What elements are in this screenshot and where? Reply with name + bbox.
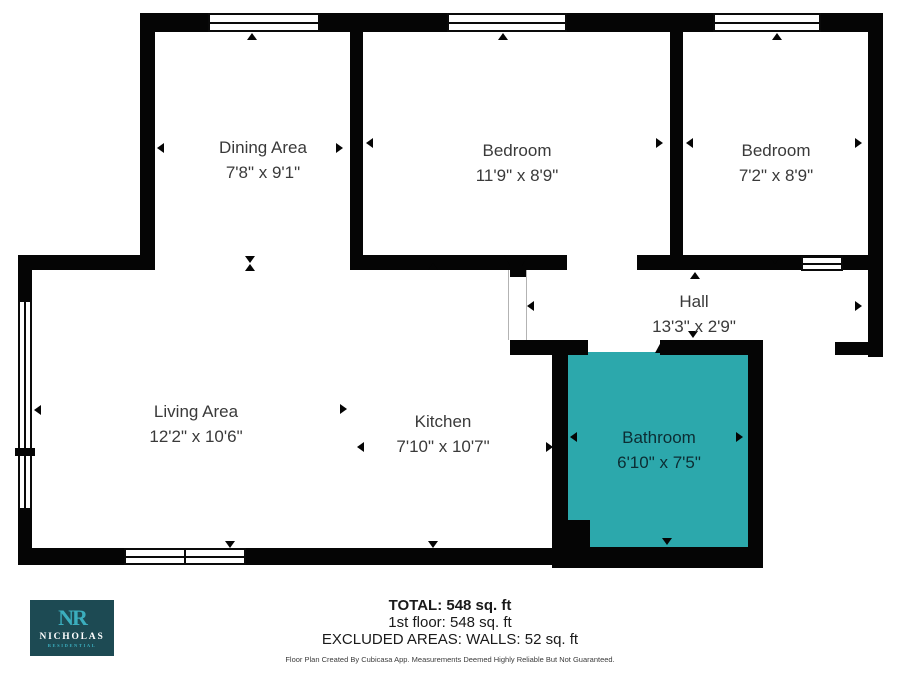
wall bbox=[18, 255, 155, 270]
room-dimensions: 6'10" x 7'5" bbox=[617, 450, 701, 475]
measure-arrow-icon bbox=[527, 301, 534, 311]
measure-arrow-icon bbox=[247, 33, 257, 40]
room-name: Kitchen bbox=[396, 409, 489, 434]
wall bbox=[835, 342, 883, 355]
measure-arrow-icon bbox=[428, 541, 438, 548]
room-dimensions: 7'2" x 8'9" bbox=[739, 163, 813, 188]
measure-arrow-icon bbox=[157, 143, 164, 153]
room-name: Bathroom bbox=[617, 425, 701, 450]
window bbox=[18, 454, 32, 510]
room-dimensions: 11'9" x 8'9" bbox=[476, 163, 559, 188]
measure-arrow-icon bbox=[366, 138, 373, 148]
wall bbox=[350, 255, 567, 270]
floor-plan-page: Dining Area 7'8" x 9'1" Bedroom 11'9" x … bbox=[0, 0, 900, 675]
logo-monogram: NR bbox=[58, 607, 86, 629]
room-label-kitchen: Kitchen 7'10" x 10'7" bbox=[396, 409, 489, 459]
wall bbox=[637, 255, 883, 270]
window bbox=[124, 548, 186, 565]
wall bbox=[140, 13, 155, 270]
room-name: Bedroom bbox=[476, 138, 559, 163]
door-marker-icon bbox=[655, 342, 679, 353]
room-name: Living Area bbox=[149, 399, 242, 424]
measure-arrow-icon bbox=[855, 138, 862, 148]
room-label-bedroom-2: Bedroom 7'2" x 8'9" bbox=[739, 138, 813, 188]
window bbox=[18, 300, 32, 450]
wall bbox=[748, 340, 763, 568]
floor-area-text: 1st floor: 548 sq. ft bbox=[285, 614, 614, 631]
measure-arrow-icon bbox=[855, 301, 862, 311]
measure-arrow-icon bbox=[245, 264, 255, 271]
passage-line bbox=[508, 270, 509, 340]
room-dimensions: 7'10" x 10'7" bbox=[396, 434, 489, 459]
room-label-hall: Hall 13'3" x 2'9" bbox=[652, 289, 736, 339]
room-label-living: Living Area 12'2" x 10'6" bbox=[149, 399, 242, 449]
logo-name: NICHOLAS bbox=[39, 631, 104, 643]
measure-arrow-icon bbox=[340, 404, 347, 414]
measure-arrow-icon bbox=[570, 432, 577, 442]
measure-arrow-icon bbox=[662, 538, 672, 545]
measure-arrow-icon bbox=[498, 33, 508, 40]
area-summary: TOTAL: 548 sq. ft 1st floor: 548 sq. ft … bbox=[285, 597, 614, 665]
excluded-areas-text: EXCLUDED AREAS: WALLS: 52 sq. ft bbox=[285, 631, 614, 648]
measure-arrow-icon bbox=[686, 138, 693, 148]
wall bbox=[868, 13, 883, 357]
room-name: Bedroom bbox=[739, 138, 813, 163]
wall bbox=[568, 520, 590, 547]
measure-arrow-icon bbox=[772, 33, 782, 40]
measure-arrow-icon bbox=[690, 272, 700, 279]
window bbox=[447, 13, 567, 32]
measure-arrow-icon bbox=[770, 257, 780, 264]
door-marker-icon bbox=[504, 255, 528, 266]
logo-subtitle: RESIDENTIAL bbox=[48, 643, 97, 649]
room-label-bedroom-1: Bedroom 11'9" x 8'9" bbox=[476, 138, 559, 188]
measure-arrow-icon bbox=[34, 405, 41, 415]
measure-arrow-icon bbox=[336, 143, 343, 153]
measure-arrow-icon bbox=[428, 263, 438, 270]
total-area-text: TOTAL: 548 sq. ft bbox=[285, 597, 614, 614]
window bbox=[208, 13, 320, 32]
wall bbox=[552, 350, 568, 568]
wall bbox=[670, 13, 683, 270]
window bbox=[184, 548, 246, 565]
disclaimer-text: Floor Plan Created By Cubicasa App. Meas… bbox=[285, 655, 614, 665]
room-name: Dining Area bbox=[219, 135, 307, 160]
measure-arrow-icon bbox=[656, 138, 663, 148]
wall bbox=[510, 340, 588, 355]
wall bbox=[552, 547, 763, 568]
window bbox=[713, 13, 821, 32]
wall bbox=[350, 13, 363, 270]
room-label-dining: Dining Area 7'8" x 9'1" bbox=[219, 135, 307, 185]
measure-arrow-icon bbox=[736, 432, 743, 442]
room-dimensions: 7'8" x 9'1" bbox=[219, 160, 307, 185]
room-name: Hall bbox=[652, 289, 736, 314]
wall bbox=[18, 548, 563, 565]
measure-arrow-icon bbox=[245, 256, 255, 263]
brand-logo: NR NICHOLAS RESIDENTIAL bbox=[30, 600, 114, 656]
window bbox=[801, 256, 843, 271]
room-dimensions: 13'3" x 2'9" bbox=[652, 314, 736, 339]
window-sill bbox=[15, 448, 35, 456]
room-label-bathroom: Bathroom 6'10" x 7'5" bbox=[617, 425, 701, 475]
measure-arrow-icon bbox=[225, 541, 235, 548]
measure-arrow-icon bbox=[546, 442, 553, 452]
room-dimensions: 12'2" x 10'6" bbox=[149, 424, 242, 449]
measure-arrow-icon bbox=[357, 442, 364, 452]
